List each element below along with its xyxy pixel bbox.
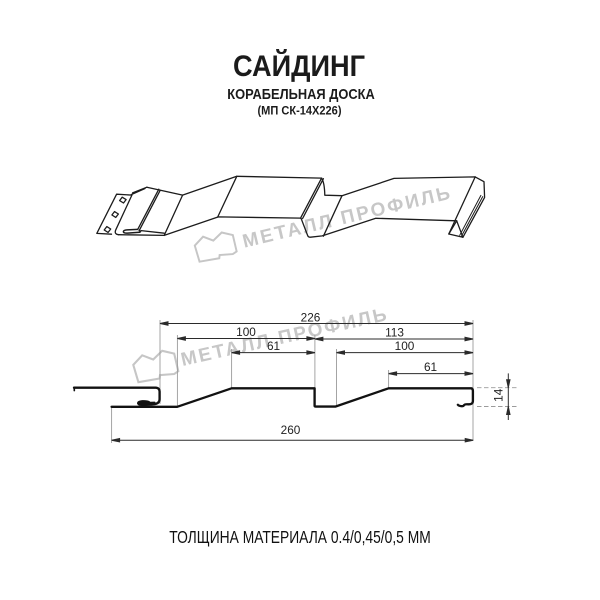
svg-text:260: 260 (281, 423, 301, 437)
svg-text:(МП СК-14Х226): (МП СК-14Х226) (258, 103, 342, 117)
svg-text:САЙДИНГ: САЙДИНГ (233, 49, 365, 83)
svg-text:61: 61 (424, 360, 437, 374)
svg-text:61: 61 (267, 339, 280, 353)
svg-text:14: 14 (492, 388, 506, 402)
svg-text:ТОЛЩИНА МАТЕРИАЛА 0.4/0,45/0,5: ТОЛЩИНА МАТЕРИАЛА 0.4/0,45/0,5 ММ (169, 527, 431, 547)
svg-text:100: 100 (395, 339, 415, 353)
svg-text:100: 100 (236, 325, 256, 339)
svg-text:226: 226 (301, 310, 321, 324)
svg-text:113: 113 (385, 326, 404, 340)
svg-text:КОРАБЕЛЬНАЯ ДОСКА: КОРАБЕЛЬНАЯ ДОСКА (227, 87, 375, 103)
